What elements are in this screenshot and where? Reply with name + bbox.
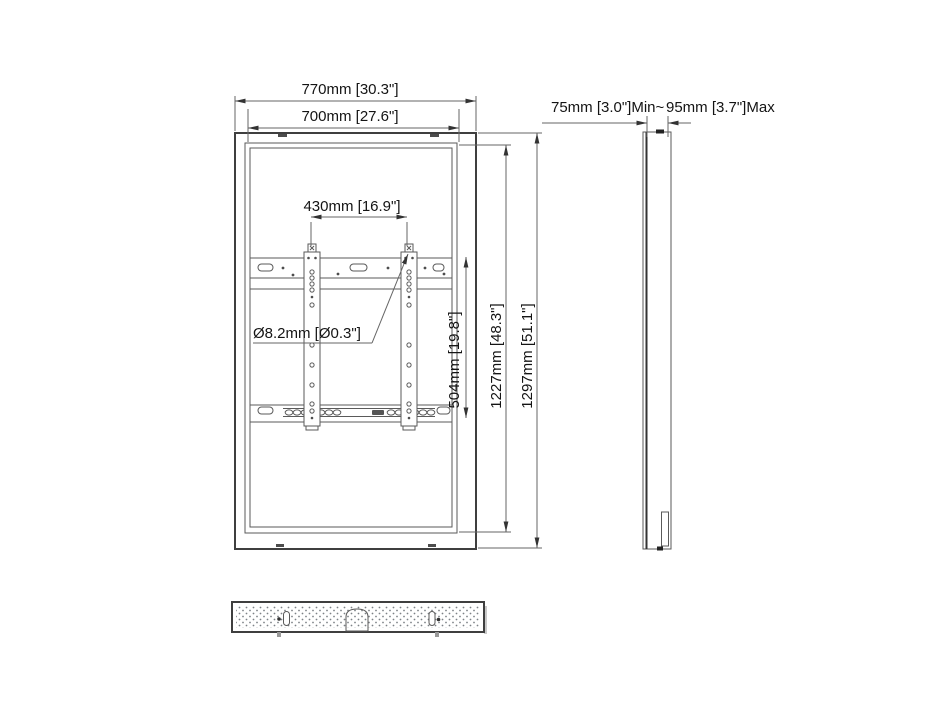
dim-hole-diameter-label: Ø8.2mm [Ø0.3"] <box>253 325 361 342</box>
dim-bracket-spacing: 430mm [16.9"] <box>303 198 407 246</box>
rail-clamp <box>372 410 384 415</box>
technical-drawing-page: 770mm [30.3"] 700mm [27.6"] 430mm [16.9"… <box>0 0 940 705</box>
side-bottom-bracket <box>657 547 663 551</box>
bottom-screw-hole <box>277 617 281 621</box>
rail-slot <box>433 264 444 271</box>
top-mounting-rail <box>250 258 452 289</box>
vesa-bracket-right <box>401 244 417 430</box>
dim-depth-min-label: 75mm [3.0"]Min~ <box>551 99 665 116</box>
bracket-foot <box>306 426 318 430</box>
rail-slot <box>258 264 273 271</box>
dim-inner-width-label: 700mm [27.6"] <box>301 108 398 125</box>
dim-depth-max-label: 95mm [3.7"]Max <box>666 99 775 116</box>
dim-inner-height: 1227mm [48.3"] <box>459 145 511 532</box>
dim-inner-height-label: 1227mm [48.3"] <box>488 303 505 408</box>
side-view <box>643 130 671 551</box>
bottom-slot <box>429 612 435 626</box>
bottom-tab <box>435 632 439 637</box>
bottom-view <box>232 602 487 637</box>
side-top-bracket <box>656 130 664 134</box>
dim-outer-height-label: 1297mm [51.1"] <box>519 303 536 408</box>
technical-drawing: 770mm [30.3"] 700mm [27.6"] 430mm [16.9"… <box>0 0 940 705</box>
dim-bracket-height: 504mm [19.8"] <box>446 257 466 418</box>
side-bottom-slot <box>662 512 669 546</box>
dim-bracket-spacing-label: 430mm [16.9"] <box>303 198 400 215</box>
dim-hole-diameter: Ø8.2mm [Ø0.3"] <box>253 254 408 343</box>
rail-slot <box>350 264 367 271</box>
bottom-slot <box>284 612 290 626</box>
bracket-foot <box>403 426 415 430</box>
dim-outer-width-label: 770mm [30.3"] <box>301 81 398 98</box>
dim-bracket-height-label: 504mm [19.8"] <box>446 311 463 408</box>
bottom-tab <box>277 632 281 637</box>
rail-slot <box>258 407 273 414</box>
bottom-mounting-rail <box>250 405 452 422</box>
bottom-screw-hole <box>437 618 441 622</box>
